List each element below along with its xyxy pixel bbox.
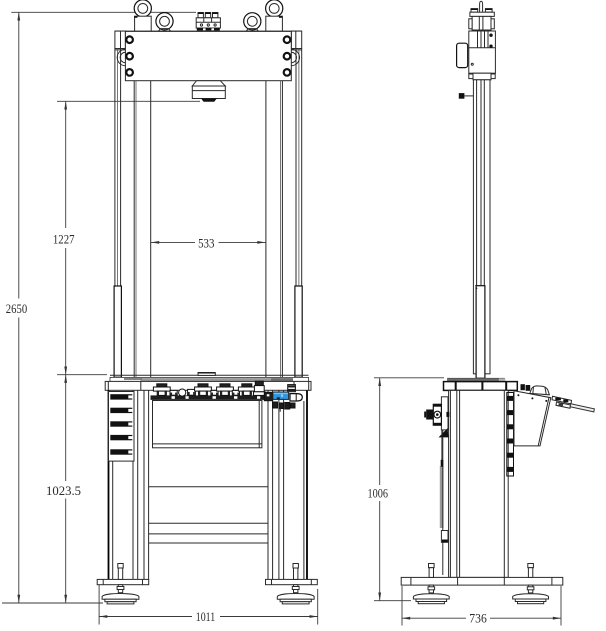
svg-text:1227: 1227 [53, 231, 75, 246]
svg-text:1011: 1011 [196, 609, 215, 624]
svg-text:533: 533 [198, 235, 214, 250]
svg-text:2650: 2650 [6, 301, 27, 316]
svg-text:1006: 1006 [368, 486, 389, 501]
svg-text:736: 736 [469, 611, 487, 626]
svg-text:1023.5: 1023.5 [46, 483, 81, 498]
